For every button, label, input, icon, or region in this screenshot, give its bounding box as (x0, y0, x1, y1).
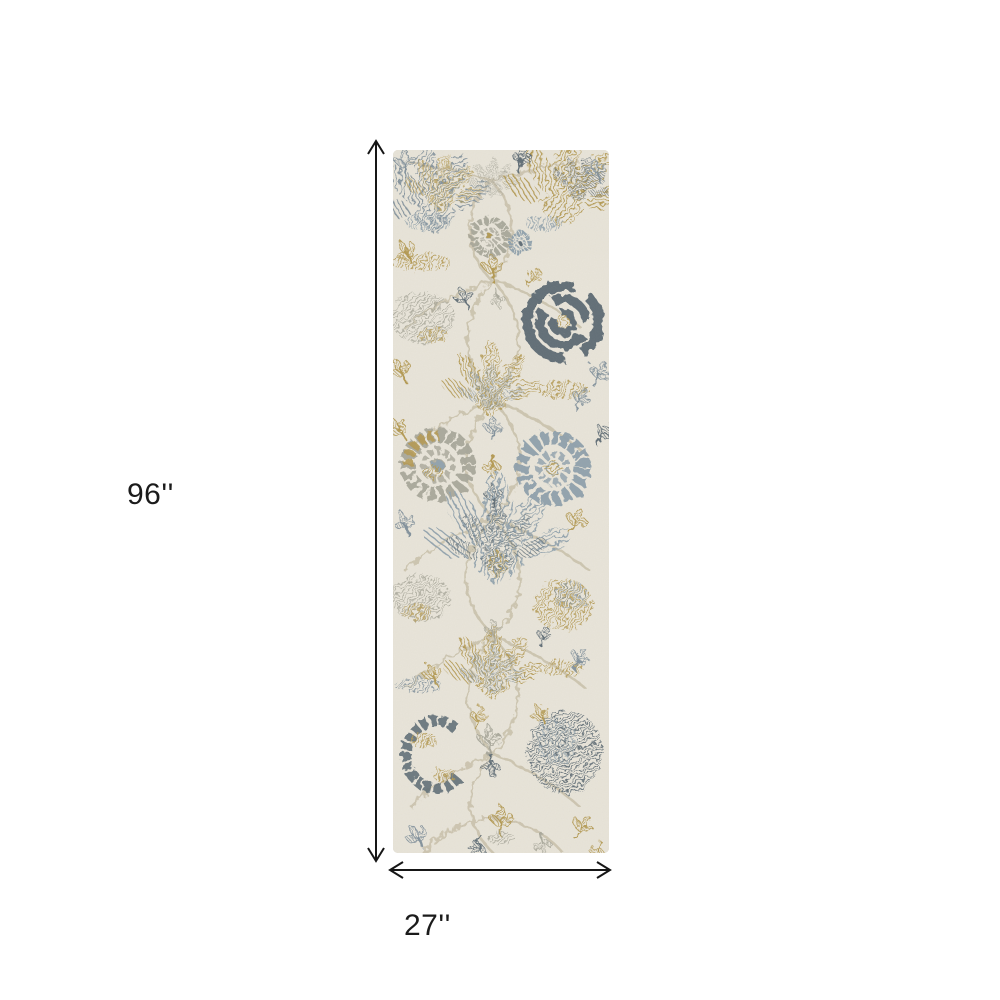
rug-image (393, 150, 609, 853)
rug-pattern-graphic (393, 150, 609, 853)
width-dimension-arrow (385, 858, 615, 882)
height-dimension-arrow (364, 137, 388, 865)
product-dimension-diagram: 96'' 27'' (0, 0, 1000, 1000)
height-dimension-label: 96'' (127, 479, 174, 511)
width-dimension-label: 27'' (404, 910, 451, 942)
